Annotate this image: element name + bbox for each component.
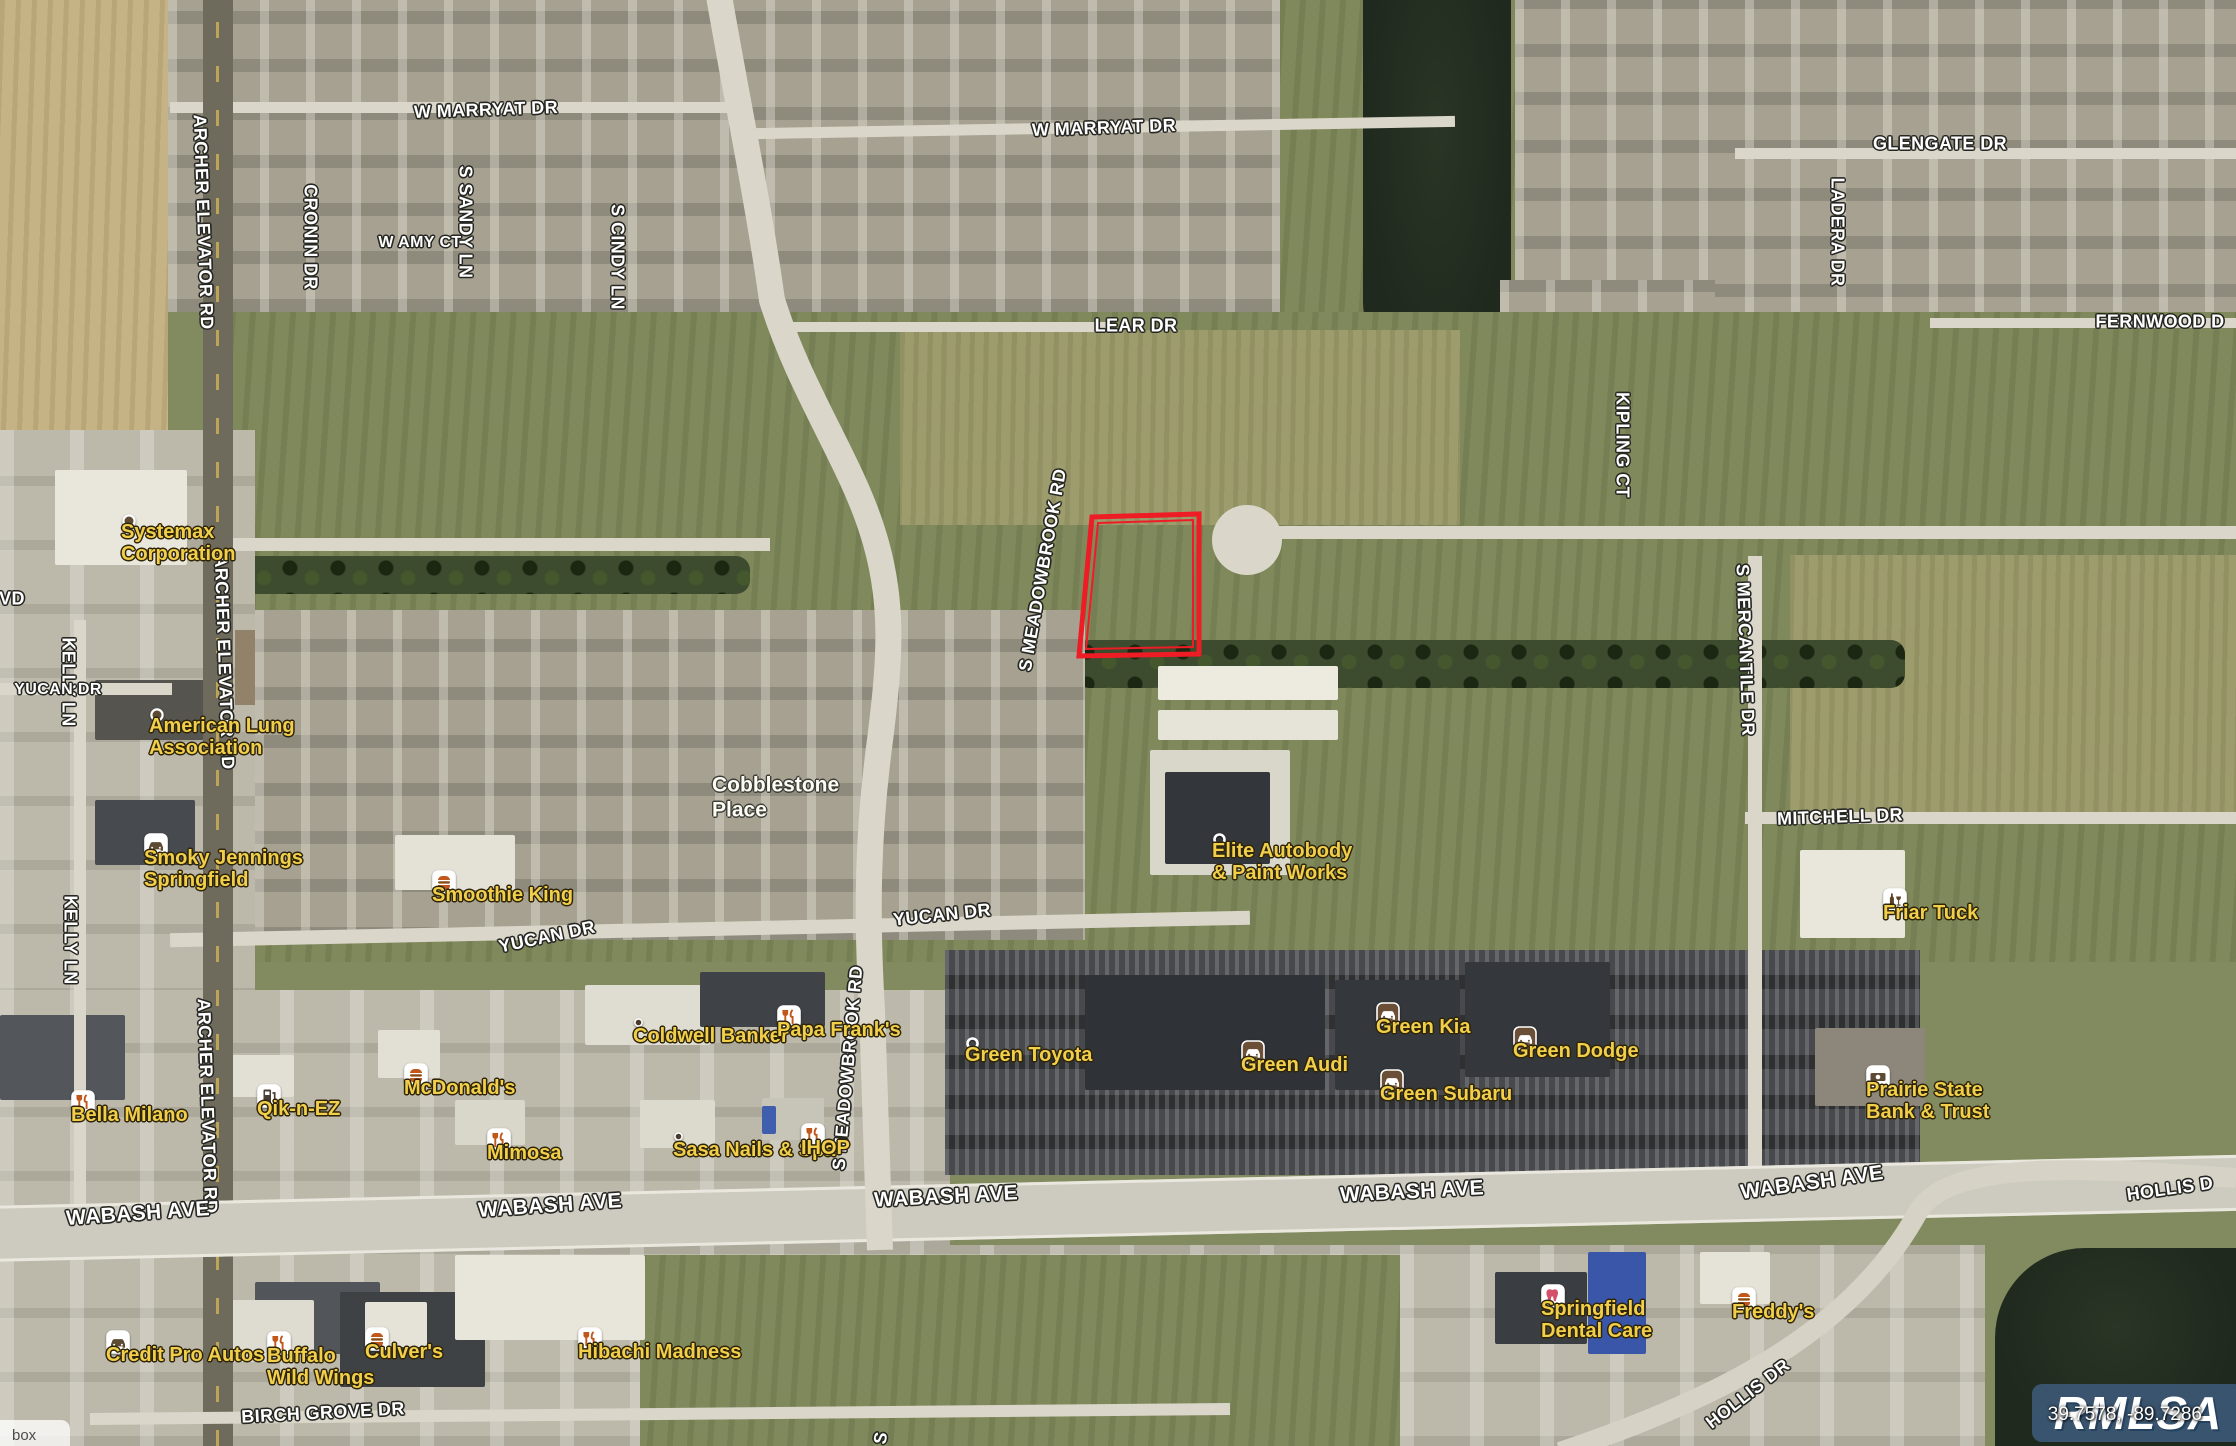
street-label: KELLY LN: [60, 895, 81, 984]
street-label: ARCHER ELEVATOR RD: [189, 114, 217, 330]
street-label: MITCHELL DR: [1777, 804, 1904, 829]
street-label: W MARRYAT DR: [1032, 115, 1177, 141]
street-label: WABASH AVE: [873, 1181, 1018, 1213]
street-label: YUCAN DR: [892, 899, 992, 930]
street-label: S MEADOWBROOK RD: [1015, 467, 1071, 673]
street-label: W MARRYAT DR: [414, 97, 559, 123]
street-label: WABASH AVE: [477, 1189, 622, 1223]
map-coordinates: 39.7578, -89.7286: [2048, 1404, 2202, 1426]
street-label: BIRCH GROVE DR: [241, 1398, 405, 1428]
street-label: KIPLING CT: [1612, 392, 1633, 498]
attribution-text: box: [12, 1427, 36, 1444]
street-label: W AMY CT: [378, 234, 461, 252]
satellite-map[interactable]: W MARRYAT DRW MARRYAT DRGLENGATE DRLEAR …: [0, 0, 2236, 1446]
street-label: S MERCANTILE DR: [1732, 564, 1759, 737]
street-label: S SANDY LN: [455, 166, 476, 279]
mapbox-attribution[interactable]: box: [0, 1420, 70, 1446]
street-label: ARCHER ELEVATOR RD: [193, 998, 221, 1214]
street-label: YUCAN DR: [497, 917, 597, 958]
street-label: WABASH AVE: [65, 1197, 210, 1231]
street-label: YUCAN DR: [14, 681, 102, 699]
street-label: GLENGATE DR: [1873, 134, 2007, 155]
street-label: S: [870, 1430, 893, 1446]
street-label: VD: [0, 589, 25, 610]
street-label: HOLLIS DR: [1702, 1355, 1794, 1433]
street-label: S CINDY LN: [607, 204, 628, 310]
street-label: WABASH AVE: [1339, 1176, 1484, 1208]
street-label: LEAR DR: [1095, 316, 1178, 337]
street-label: WABASH AVE: [1739, 1161, 1885, 1205]
street-label: FERNWOOD D: [2096, 312, 2225, 333]
street-label: LADERA DR: [1827, 178, 1848, 287]
street-label: CRONIN DR: [300, 184, 321, 290]
street-label: HOLLIS D: [2125, 1173, 2214, 1206]
